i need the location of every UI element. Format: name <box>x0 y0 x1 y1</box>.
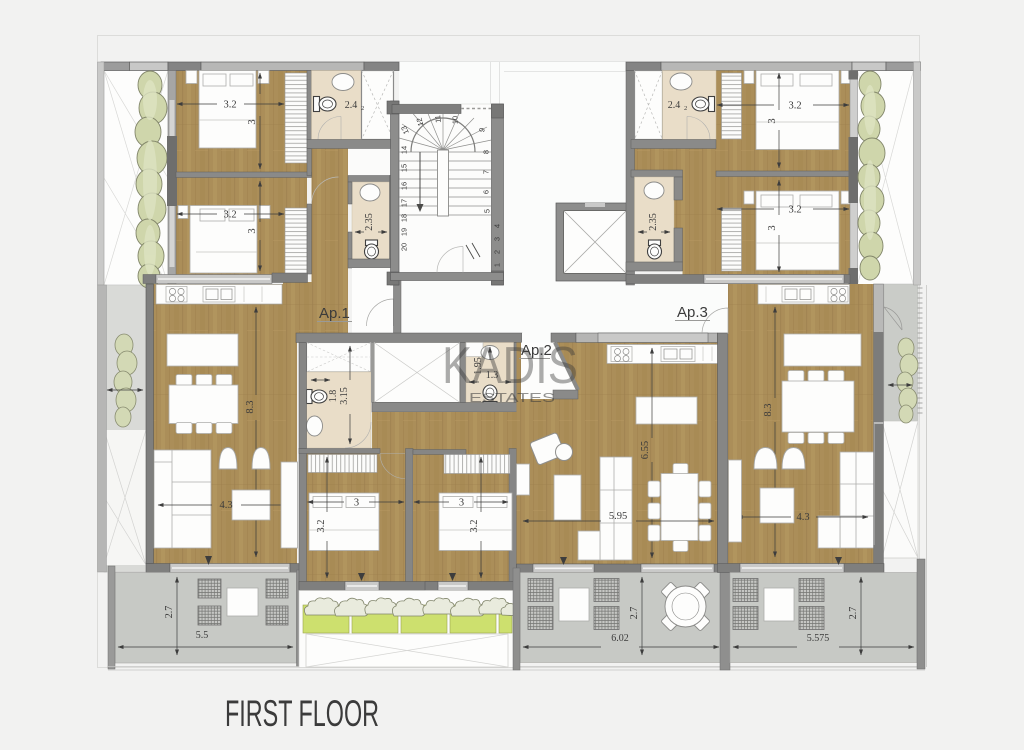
svg-text:2.35: 2.35 <box>648 213 659 231</box>
svg-text:3: 3 <box>767 118 778 123</box>
svg-text:6: 6 <box>482 190 491 194</box>
svg-text:14: 14 <box>400 146 409 154</box>
svg-text:11: 11 <box>433 115 443 124</box>
svg-text:3: 3 <box>247 228 258 233</box>
svg-text:3: 3 <box>247 119 258 124</box>
svg-text:3.2: 3.2 <box>788 101 801 112</box>
svg-text:3.15: 3.15 <box>339 387 350 405</box>
svg-text:5.575: 5.575 <box>807 633 830 644</box>
svg-text:ESTATES: ESTATES <box>469 390 555 405</box>
svg-text:2.7: 2.7 <box>164 606 175 619</box>
svg-text:8: 8 <box>482 150 491 154</box>
svg-text:5: 5 <box>483 209 492 213</box>
svg-text:5.5: 5.5 <box>196 630 209 641</box>
svg-text:16: 16 <box>400 182 409 190</box>
svg-text:KADIS: KADIS <box>442 337 578 395</box>
svg-text:2.7: 2.7 <box>848 607 859 620</box>
svg-text:7: 7 <box>482 170 491 174</box>
svg-text:Ap.3: Ap.3 <box>677 304 708 321</box>
svg-text:2: 2 <box>684 105 687 112</box>
svg-text:2.4: 2.4 <box>345 100 358 111</box>
svg-text:3: 3 <box>354 498 359 509</box>
svg-text:FIRST FLOOR: FIRST FLOOR <box>225 693 379 734</box>
svg-text:6.02: 6.02 <box>611 633 629 644</box>
svg-text:20: 20 <box>400 243 409 251</box>
svg-text:1.8: 1.8 <box>328 390 339 403</box>
svg-text:2: 2 <box>361 105 364 112</box>
svg-text:3.2: 3.2 <box>316 519 327 532</box>
svg-text:4.3: 4.3 <box>796 512 809 523</box>
svg-text:3.2: 3.2 <box>223 210 236 221</box>
svg-text:10: 10 <box>451 116 460 124</box>
svg-text:3.2: 3.2 <box>223 100 236 111</box>
svg-text:18: 18 <box>400 214 409 222</box>
svg-text:1: 1 <box>493 263 502 267</box>
svg-text:8.3: 8.3 <box>245 400 256 413</box>
svg-text:4.3: 4.3 <box>219 500 232 511</box>
svg-text:2.35: 2.35 <box>364 213 375 231</box>
svg-text:15: 15 <box>400 164 409 172</box>
svg-text:8.3: 8.3 <box>763 403 774 416</box>
svg-text:5.95: 5.95 <box>609 511 627 522</box>
svg-text:2: 2 <box>493 250 502 254</box>
svg-text:3.2: 3.2 <box>788 205 801 216</box>
svg-text:4: 4 <box>493 224 502 228</box>
svg-text:17: 17 <box>400 199 409 207</box>
svg-text:6.55: 6.55 <box>640 441 651 459</box>
svg-text:Ap.1: Ap.1 <box>319 305 350 322</box>
svg-text:3: 3 <box>459 498 464 509</box>
svg-text:2.7: 2.7 <box>629 607 640 620</box>
svg-text:2.4: 2.4 <box>668 100 681 111</box>
svg-text:3: 3 <box>767 225 778 230</box>
svg-text:3.2: 3.2 <box>469 519 480 532</box>
svg-text:19: 19 <box>400 228 409 236</box>
svg-text:3: 3 <box>493 237 502 241</box>
